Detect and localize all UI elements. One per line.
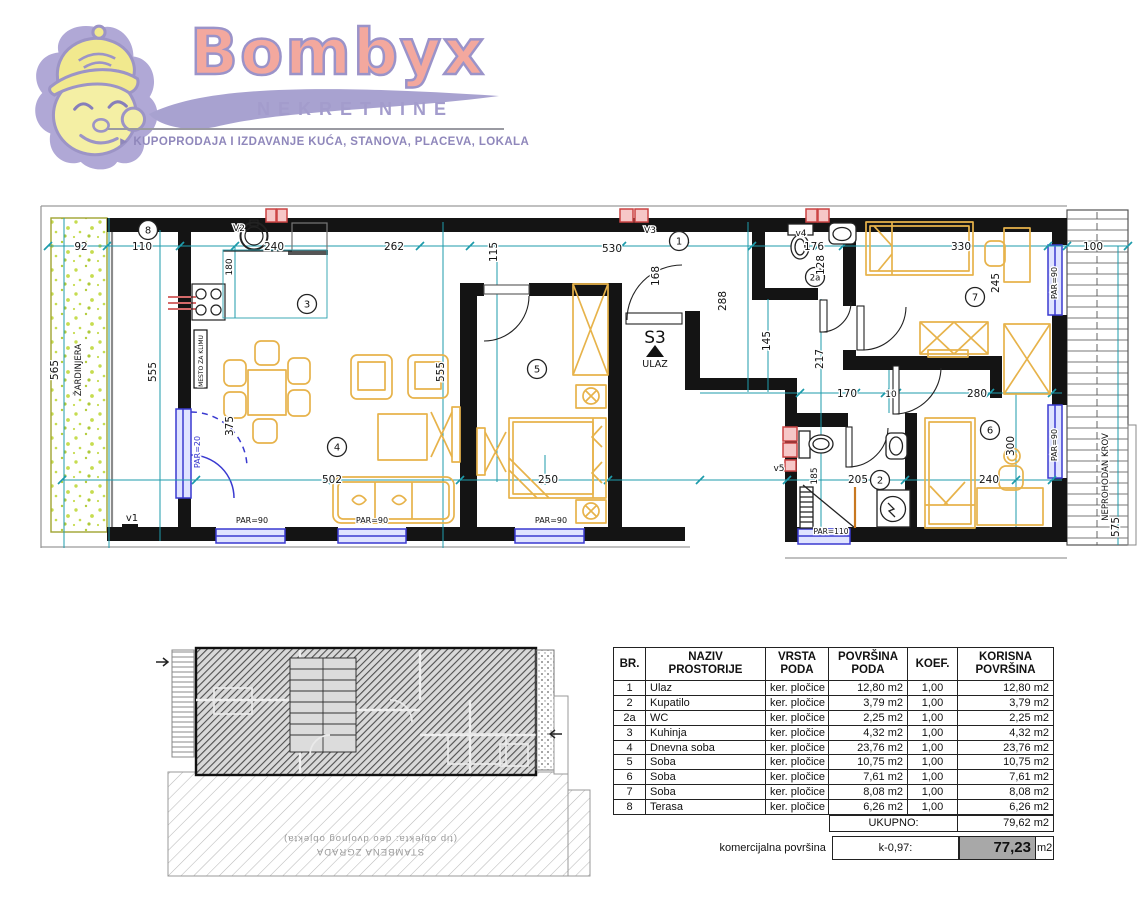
- commercial-value: 77,23: [959, 836, 1036, 860]
- table-cell: 2,25 m2: [958, 710, 1054, 725]
- vent-wc: [806, 209, 829, 222]
- commercial-label: komercijalna površina: [613, 836, 832, 860]
- col-area: POVRŠINAPODA: [829, 648, 908, 681]
- coef-label: k-0,97:: [832, 836, 959, 860]
- table-cell: 1,00: [908, 740, 958, 755]
- sofa: [333, 477, 454, 523]
- desk-room7: [1004, 228, 1030, 282]
- entrance-label: ULAZ: [642, 359, 668, 370]
- col-koef: KOEF.: [908, 648, 958, 681]
- table-row: 2aWCker. pločice2,25 m21,002,25 m2: [614, 710, 1054, 725]
- bath-toilet: [799, 431, 833, 458]
- plan-label: 330: [951, 241, 971, 253]
- siteplan-caption-line1: STAMBENA ZGRADA: [252, 845, 488, 858]
- plan-label: ŽARDINJERA: [72, 344, 84, 396]
- total-label: UKUPNO:: [829, 815, 958, 832]
- siteplan-caption-line2: (tip objekta: deo dvojnog objekta): [252, 832, 488, 845]
- desk-room6: [977, 488, 1043, 525]
- col-br: BR.: [614, 648, 646, 681]
- room-circle-label: 7: [972, 292, 978, 303]
- col-name: NAZIVPROSTORIJE: [646, 648, 766, 681]
- washing-machine: [877, 490, 910, 527]
- table-cell: 1,00: [908, 725, 958, 740]
- table-cell: 10,75 m2: [829, 755, 908, 770]
- table-cell: 1,00: [908, 800, 958, 815]
- plan-label: PAR=110: [814, 527, 849, 536]
- table-cell: 1: [614, 681, 646, 696]
- plan-label: 555: [435, 362, 447, 382]
- plan-label: MESTO ZA KLIMU: [198, 335, 205, 387]
- room-circle-label: 1: [676, 236, 682, 247]
- table-row: 6Sobaker. pločice7,61 m21,007,61 m2: [614, 770, 1054, 785]
- plan-label: 176: [804, 241, 824, 253]
- plan-label: 92: [74, 241, 87, 253]
- siteplan-side-strip: [536, 650, 554, 770]
- col-floor: VRSTAPODA: [766, 648, 829, 681]
- table-cell: 1,00: [908, 695, 958, 710]
- siteplan-balcony-strip: [172, 650, 194, 757]
- area-table: BR. NAZIVPROSTORIJE VRSTAPODA POVRŠINAPO…: [613, 647, 1054, 860]
- siteplan-caption: STAMBENA ZGRADA (tip objekta: deo dvojno…: [252, 822, 488, 858]
- table-cell: Soba: [646, 755, 766, 770]
- table-row: 8Terasaker. pločice6,26 m21,006,26 m2: [614, 800, 1054, 815]
- table-cell: 6,26 m2: [958, 800, 1054, 815]
- plan-label: PAR=90: [1050, 267, 1059, 299]
- plan-label: 168: [650, 266, 662, 286]
- table-cell: 7: [614, 785, 646, 800]
- plan-label: 115: [488, 242, 500, 262]
- room-circle-label: 6: [987, 425, 993, 436]
- table-row: 5Sobaker. pločice10,75 m21,0010,75 m2: [614, 755, 1054, 770]
- bathroom-door: [846, 427, 888, 467]
- table-cell: ker. pločice: [766, 695, 829, 710]
- plan-label: V2: [233, 224, 245, 234]
- plan-label: PAR=90: [535, 516, 567, 525]
- table-cell: ker. pločice: [766, 725, 829, 740]
- table-row: 3Kuhinjaker. pločice4,32 m21,004,32 m2: [614, 725, 1054, 740]
- table-cell: 6,26 m2: [829, 800, 908, 815]
- plan-label: 205: [848, 474, 868, 486]
- siteplan-arrow-left: [156, 658, 168, 666]
- armchairs: [351, 355, 448, 399]
- table-cell: Terasa: [646, 800, 766, 815]
- table-cell: ker. pločice: [766, 740, 829, 755]
- table-row: 4Dnevna sobaker. pločice23,76 m21,0023,7…: [614, 740, 1054, 755]
- furniture: [224, 222, 1050, 528]
- table-row: 2Kupatiloker. pločice3,79 m21,003,79 m2: [614, 695, 1054, 710]
- table-cell: Soba: [646, 785, 766, 800]
- plan-label: 145: [761, 331, 773, 351]
- table-cell: 7,61 m2: [958, 770, 1054, 785]
- plan-label: 565: [49, 360, 61, 380]
- plan-label: 262: [384, 241, 404, 253]
- plan-label: v4: [795, 229, 806, 239]
- table-cell: 2,25 m2: [829, 710, 908, 725]
- plan-label: 245: [990, 273, 1002, 293]
- vent-kitchen: [266, 209, 287, 222]
- plan-label: 240: [264, 241, 284, 253]
- table-cell: 1,00: [908, 681, 958, 696]
- table-cell: ker. pločice: [766, 710, 829, 725]
- commercial-unit: m2: [1036, 836, 1054, 860]
- table-cell: 8,08 m2: [829, 785, 908, 800]
- table-row: 7Sobaker. pločice8,08 m21,008,08 m2: [614, 785, 1054, 800]
- window-living-1: [216, 529, 285, 543]
- total-row: UKUPNO: 79,62 m2: [613, 815, 1054, 832]
- coffee-table: [378, 414, 427, 460]
- plan-label: v5: [773, 464, 784, 474]
- table-cell: 8,08 m2: [958, 785, 1054, 800]
- plan-label: 240: [979, 474, 999, 486]
- plan-label: 288: [717, 291, 729, 311]
- table-cell: 5: [614, 755, 646, 770]
- table-cell: Kupatilo: [646, 695, 766, 710]
- room-circle-label: 8: [145, 225, 151, 236]
- vent-bath: [783, 427, 797, 471]
- table-cell: 3: [614, 725, 646, 740]
- table-cell: ker. pločice: [766, 800, 829, 815]
- plan-label: 110: [132, 241, 152, 253]
- table-cell: 12,80 m2: [958, 681, 1054, 696]
- wc-sink: [829, 223, 856, 244]
- plan-label: 375: [224, 416, 236, 436]
- unit-number-label: S3: [644, 328, 666, 348]
- room-circle-label: 4: [334, 442, 340, 453]
- table-cell: 2: [614, 695, 646, 710]
- plan-label: 300: [1005, 436, 1017, 456]
- plan-label: PAR=90: [236, 516, 268, 525]
- table-cell: 6: [614, 770, 646, 785]
- table-cell: 8: [614, 800, 646, 815]
- room-circle-label: 2: [877, 475, 883, 486]
- towel-radiator: [800, 487, 813, 528]
- table-cell: ker. pločice: [766, 770, 829, 785]
- table-header-row: BR. NAZIVPROSTORIJE VRSTAPODA POVRŠINAPO…: [614, 648, 1054, 681]
- bath-sink: [886, 433, 907, 459]
- plan-label: 10: [885, 390, 897, 400]
- terrace-door: [176, 409, 247, 498]
- table-cell: 4,32 m2: [958, 725, 1054, 740]
- bed-room6: [925, 418, 975, 528]
- table-cell: 1,00: [908, 710, 958, 725]
- plan-label: v1: [126, 513, 138, 524]
- table-cell: 1,00: [908, 755, 958, 770]
- table-cell: 2a: [614, 710, 646, 725]
- table-cell: 10,75 m2: [958, 755, 1054, 770]
- col-usable: KORISNAPOVRŠINA: [958, 648, 1054, 681]
- stove: [192, 284, 225, 320]
- room-circle-label: 5: [534, 364, 540, 375]
- bed-room5: [509, 418, 606, 498]
- table-cell: ker. pločice: [766, 681, 829, 696]
- table-cell: 4: [614, 740, 646, 755]
- table-cell: 12,80 m2: [829, 681, 908, 696]
- total-value: 79,62 m2: [958, 815, 1054, 832]
- plan-label: 575: [1110, 517, 1122, 537]
- plan-label: 128: [815, 255, 827, 275]
- room7-door: [857, 306, 906, 350]
- plan-label: 170: [837, 388, 857, 400]
- table-cell: 3,79 m2: [958, 695, 1054, 710]
- table-cell: 4,32 m2: [829, 725, 908, 740]
- plan-label: 250: [538, 474, 558, 486]
- plan-label: NEPROHODAN KROV: [1101, 433, 1111, 521]
- commercial-row: komercijalna površina k-0,97: 77,23 m2: [613, 836, 1054, 860]
- table-cell: 23,76 m2: [829, 740, 908, 755]
- table-cell: ker. pločice: [766, 785, 829, 800]
- room-circle-label: 3: [304, 299, 310, 310]
- table-cell: 7,61 m2: [829, 770, 908, 785]
- table-cell: Dnevna soba: [646, 740, 766, 755]
- table-cell: 1,00: [908, 770, 958, 785]
- table-cell: ker. pločice: [766, 755, 829, 770]
- window-living-2: [338, 529, 406, 543]
- table-cell: Soba: [646, 770, 766, 785]
- dining-set: [224, 341, 310, 443]
- plan-label: PAR=90: [356, 516, 388, 525]
- plan-label: PAR=20: [193, 436, 202, 468]
- plan-label: 217: [814, 349, 826, 369]
- room5-door: [484, 285, 529, 341]
- window-room5: [515, 529, 584, 543]
- plan-label: 100: [1083, 241, 1103, 253]
- table-cell: 1,00: [908, 785, 958, 800]
- table-cell: 23,76 m2: [958, 740, 1054, 755]
- plan-label: 280: [967, 388, 987, 400]
- area-table-body: 1Ulazker. pločice12,80 m21,0012,80 m22Ku…: [614, 681, 1054, 815]
- table-cell: Ulaz: [646, 681, 766, 696]
- plan-label: 555: [147, 362, 159, 382]
- siteplan-building: [196, 648, 536, 775]
- table-cell: 3,79 m2: [829, 695, 908, 710]
- plan-label: V3: [644, 226, 656, 236]
- table-cell: WC: [646, 710, 766, 725]
- plan-label: 180: [225, 258, 235, 275]
- table-cell: Kuhinja: [646, 725, 766, 740]
- room5-furniture: [509, 284, 608, 523]
- plan-label: 502: [322, 474, 342, 486]
- plan-label: PAR=90: [1050, 429, 1059, 461]
- plan-label: 530: [602, 243, 622, 255]
- plan-label: 185: [810, 467, 820, 484]
- siteplan-stairs: [290, 658, 356, 752]
- table-row: 1Ulazker. pločice12,80 m21,0012,80 m2: [614, 681, 1054, 696]
